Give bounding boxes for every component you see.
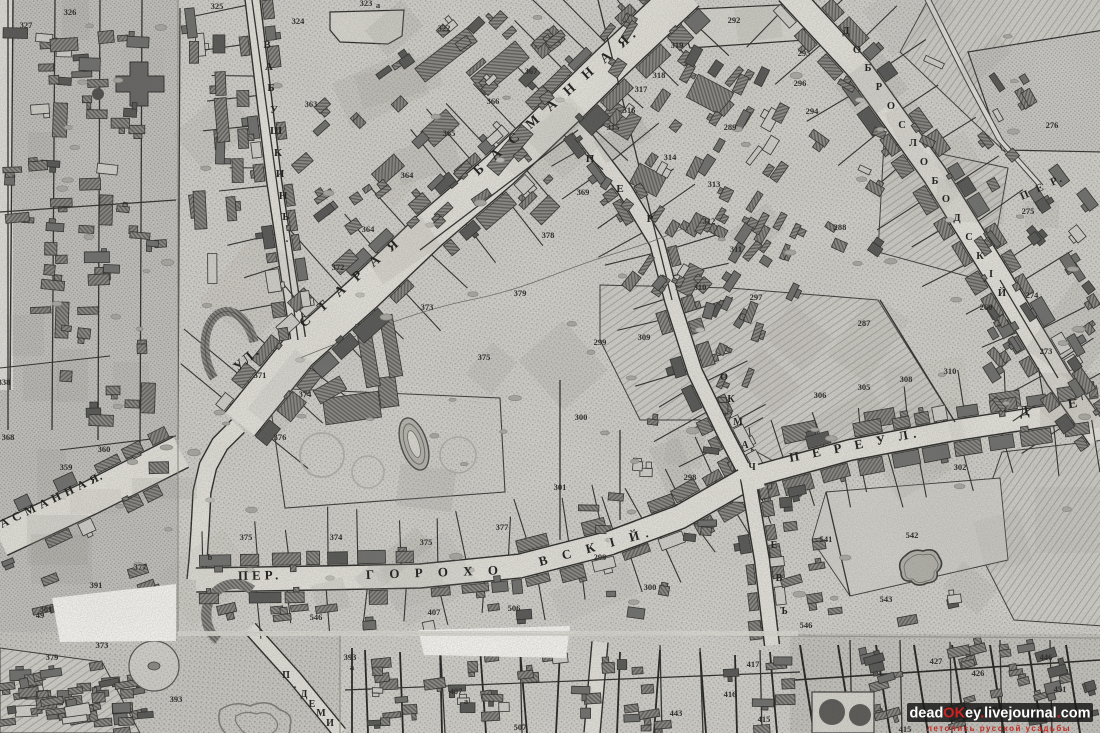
svg-text:летопись русской усадьбы: летопись русской усадьбы <box>927 724 1071 733</box>
svg-text:deadOKey.livejournal.com: deadOKey.livejournal.com <box>909 706 1090 722</box>
